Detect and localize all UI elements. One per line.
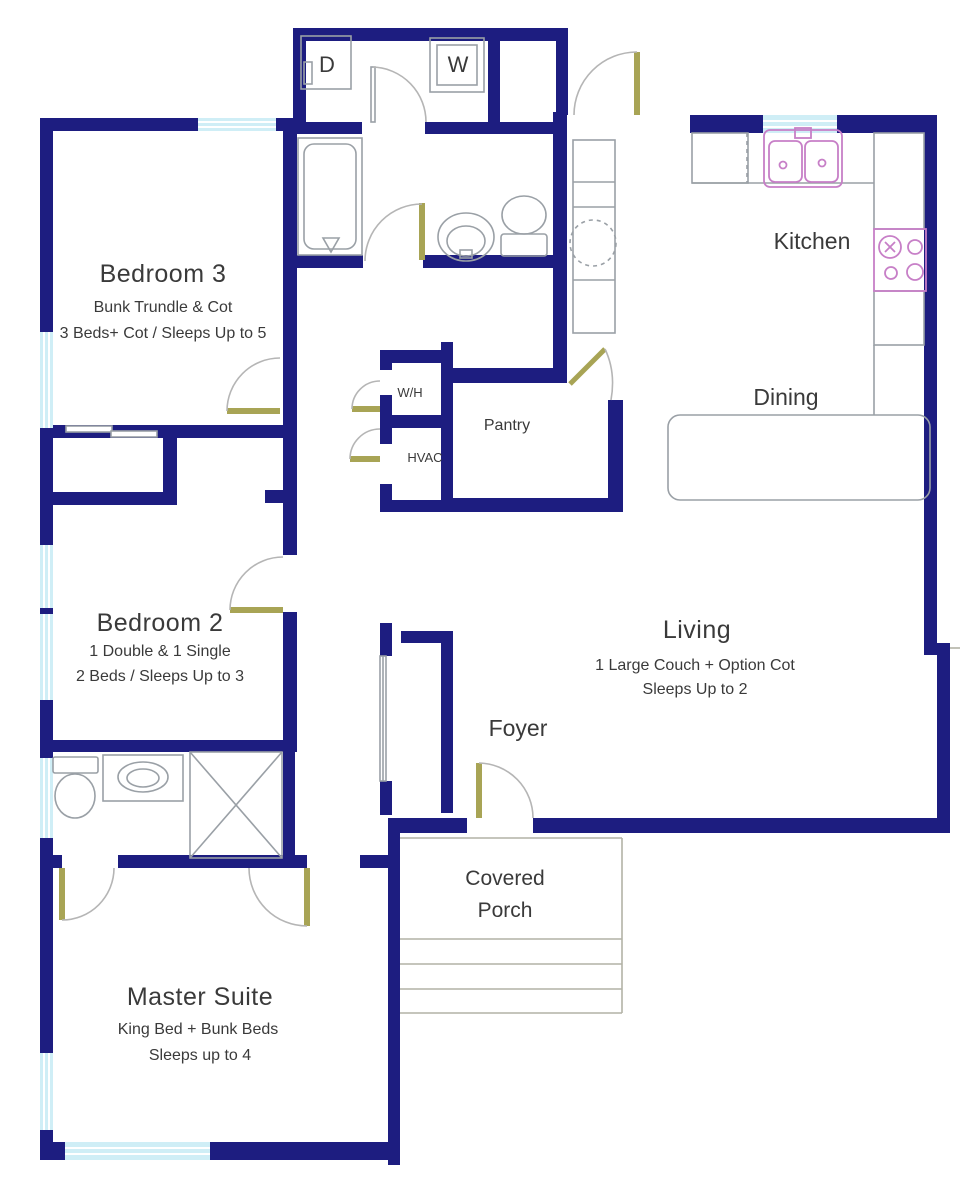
master-vanity-sink bbox=[103, 755, 183, 801]
master-bottom-window bbox=[65, 1142, 210, 1160]
dining-table bbox=[668, 415, 930, 500]
laundry-door bbox=[371, 67, 426, 122]
front-entry-door bbox=[476, 763, 533, 818]
porch-label-line1: Covered bbox=[465, 867, 544, 890]
bathtub bbox=[298, 138, 362, 255]
master-toilet bbox=[53, 757, 98, 818]
bedroom3-door bbox=[227, 358, 280, 414]
porch-steps bbox=[400, 838, 622, 1013]
master-shower bbox=[190, 752, 282, 858]
doors bbox=[59, 52, 640, 926]
stove bbox=[874, 229, 926, 291]
hall-bath-door bbox=[365, 203, 425, 261]
bedroom3-sub1: Bunk Trundle & Cot bbox=[94, 299, 233, 316]
living-label: Living bbox=[663, 616, 731, 644]
bedroom3-label: Bedroom 3 bbox=[100, 260, 227, 288]
water-heater-door bbox=[352, 381, 380, 412]
water-heater-label: W/H bbox=[397, 385, 422, 400]
bedroom2-door bbox=[230, 557, 283, 613]
living-sub1: 1 Large Couch + Option Cot bbox=[595, 657, 795, 674]
kitchen-sink bbox=[764, 128, 842, 187]
master-bath-door bbox=[59, 868, 114, 920]
master-bath-window bbox=[40, 758, 53, 838]
living-sub2: Sleeps Up to 2 bbox=[643, 681, 748, 698]
bedroom2-label: Bedroom 2 bbox=[97, 609, 224, 637]
labels: Bedroom 3 Bunk Trundle & Cot 3 Beds+ Cot… bbox=[60, 52, 851, 1064]
hall-bath-sink bbox=[438, 213, 494, 261]
master-suite-door bbox=[249, 868, 310, 926]
floor-plan-page: Bedroom 3 Bunk Trundle & Cot 3 Beds+ Cot… bbox=[0, 0, 960, 1196]
hall-bath-toilet bbox=[501, 196, 547, 256]
pantry-label: Pantry bbox=[484, 417, 530, 434]
bedroom2-sub2: 2 Beds / Sleeps Up to 3 bbox=[76, 668, 244, 685]
floor-plan: Bedroom 3 Bunk Trundle & Cot 3 Beds+ Cot… bbox=[0, 0, 960, 1196]
kitchen-hall-door bbox=[574, 52, 640, 115]
bedroom3-left-window bbox=[40, 332, 53, 428]
porch-label-line2: Porch bbox=[478, 899, 533, 922]
washer-label: W bbox=[448, 52, 469, 77]
dining-label: Dining bbox=[753, 384, 818, 410]
dryer-label: D bbox=[319, 52, 335, 77]
hvac-label: HVAC bbox=[407, 450, 442, 465]
foyer-closet-slider bbox=[380, 656, 386, 781]
hvac-door bbox=[350, 429, 380, 462]
kitchen-counters bbox=[570, 133, 924, 415]
bedroom2-left-window bbox=[40, 545, 53, 700]
master-sub1: King Bed + Bunk Beds bbox=[118, 1021, 279, 1038]
master-sub2: Sleeps up to 4 bbox=[149, 1047, 251, 1064]
foyer-label: Foyer bbox=[489, 715, 548, 741]
bedroom3-top-window bbox=[198, 118, 276, 131]
master-left-window bbox=[40, 1053, 53, 1130]
bedroom3-sub2: 3 Beds+ Cot / Sleeps Up to 5 bbox=[60, 325, 267, 342]
pantry-door bbox=[570, 349, 613, 400]
bedroom2-sub1: 1 Double & 1 Single bbox=[89, 643, 231, 660]
master-label: Master Suite bbox=[127, 983, 273, 1011]
kitchen-label: Kitchen bbox=[774, 228, 851, 254]
